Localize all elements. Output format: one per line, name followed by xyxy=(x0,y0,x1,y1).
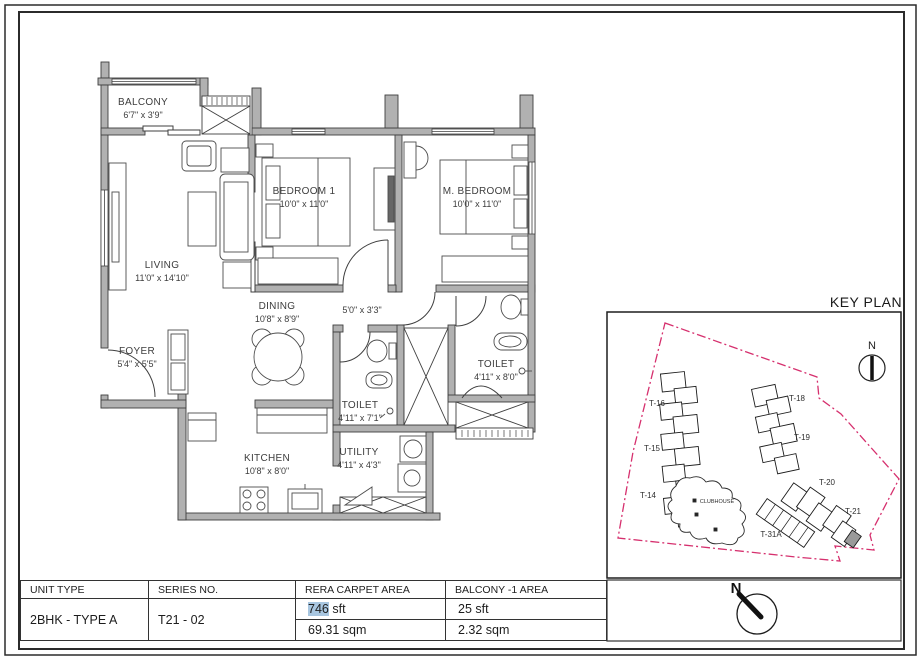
info-table-header-row: UNIT TYPE SERIES NO. RERA CARPET AREA BA… xyxy=(21,581,606,599)
room-label-utility: UTILITY 4'11" x 4'3" xyxy=(337,447,381,471)
header-series-no: SERIES NO. xyxy=(149,581,296,598)
keyplan-north-label: N xyxy=(868,340,876,352)
tower-label-t20: T-20 xyxy=(819,477,835,489)
wc xyxy=(367,340,396,362)
shower-head-icon xyxy=(380,408,393,418)
utility-sink xyxy=(400,436,426,462)
header-unit-type: UNIT TYPE xyxy=(21,581,149,598)
kitchen-stove xyxy=(240,487,268,513)
utility-door-leaf xyxy=(345,487,372,505)
tower-label-t19: T-19 xyxy=(794,432,810,444)
armchair xyxy=(182,141,216,171)
sofa xyxy=(220,174,254,260)
room-label-passage: 5'0" x 3'3" xyxy=(342,304,381,316)
compass-north-label: N xyxy=(731,583,742,595)
tower-label-t31a: T-31A xyxy=(760,529,781,541)
floor-plan-sheet: BALCONY 6'7" x 3'9" LIVING 11'0" x 14'10… xyxy=(0,0,921,660)
washbasin xyxy=(366,372,392,388)
balcony-area-sqm: 2.32 sqm xyxy=(446,619,606,640)
coffee-table xyxy=(188,192,216,246)
room-label-mbedroom: M. BEDROOM 10'0" x 11'0" xyxy=(443,186,512,210)
dining-set xyxy=(252,329,304,385)
wc xyxy=(501,295,528,319)
balcony-area-sft: 25 sft xyxy=(446,599,606,619)
info-table-data-row: 2BHK - TYPE A T21 - 02 746 sft 69.31 sqm… xyxy=(21,599,606,640)
rera-area-sft: 746 sft xyxy=(296,599,445,619)
cell-rera-carpet-area: 746 sft 69.31 sqm xyxy=(296,599,446,640)
tower-label-t14: T-14 xyxy=(640,490,656,502)
rera-area-sqm: 69.31 sqm xyxy=(296,619,445,640)
dresser-mbedroom xyxy=(442,256,528,282)
kitchen-counter xyxy=(257,408,327,433)
tower-label-t15: T-15 xyxy=(644,443,660,455)
tower-label-t21: T-21 xyxy=(845,506,861,518)
nightstand xyxy=(256,144,273,157)
rera-sft-value-highlighted: 746 xyxy=(308,602,329,616)
header-rera-carpet-area: RERA CARPET AREA xyxy=(296,581,446,598)
nightstand xyxy=(512,145,528,158)
washbasin xyxy=(494,333,527,350)
fridge xyxy=(188,413,216,441)
side-table xyxy=(221,148,249,172)
north-arrow-icon xyxy=(737,594,777,634)
dresser-bedroom1 xyxy=(258,258,338,284)
header-balcony-area: BALCONY -1 AREA xyxy=(446,581,606,598)
wardrobe-bedroom1 xyxy=(374,168,395,230)
room-label-toilet-common: TOILET 4'11" x 7'1" xyxy=(338,400,382,424)
room-label-living: LIVING 11'0" x 14'10" xyxy=(135,260,189,284)
room-label-balcony: BALCONY 6'7" x 3'9" xyxy=(118,97,168,121)
tv-unit xyxy=(109,163,126,290)
room-label-bedroom1: BEDROOM 1 10'0" x 11'0" xyxy=(273,186,336,210)
compass-cell xyxy=(607,580,901,641)
clubhouse-label: CLUBHOUSE xyxy=(700,496,734,508)
shoe-cabinet xyxy=(168,330,188,394)
room-label-dining: DINING 10'8" x 8'9" xyxy=(255,301,299,325)
tower-label-t18: T-18 xyxy=(789,393,805,405)
cell-unit-type: 2BHK - TYPE A xyxy=(21,599,149,640)
room-label-foyer: FOYER 5'4" x 5'5" xyxy=(117,346,156,370)
keyplan-north-icon xyxy=(859,355,885,381)
washing-machine xyxy=(398,464,426,492)
nightstand xyxy=(512,236,528,249)
kitchen-sink xyxy=(288,484,322,513)
dresser-mirror xyxy=(404,142,428,178)
room-label-toilet-master: TOILET 4'11" x 8'0" xyxy=(474,359,518,383)
floor-plan xyxy=(98,62,535,520)
tower-label-t16: T-16 xyxy=(649,398,665,410)
cell-series-no: T21 - 02 xyxy=(149,599,296,640)
cell-balcony-area: 25 sft 2.32 sqm xyxy=(446,599,606,640)
side-table xyxy=(223,262,251,288)
room-label-kitchen: KITCHEN 10'8" x 8'0" xyxy=(244,453,290,477)
info-table: UNIT TYPE SERIES NO. RERA CARPET AREA BA… xyxy=(20,580,607,641)
key-plan-title: KEY PLAN xyxy=(830,296,902,308)
